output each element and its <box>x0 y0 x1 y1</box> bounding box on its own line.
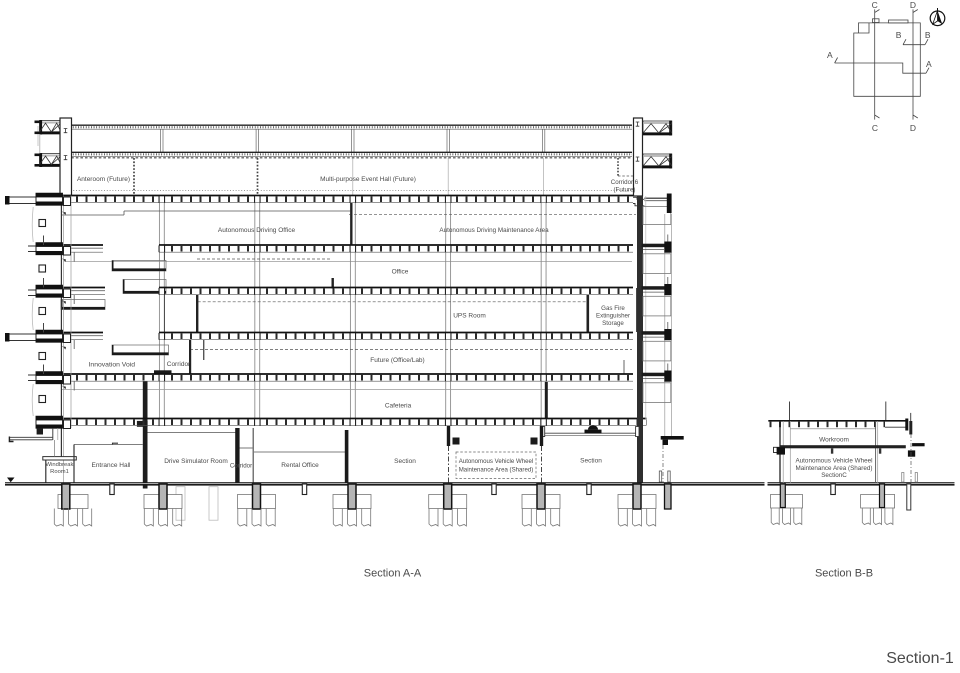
svg-text:Room1: Room1 <box>50 469 69 475</box>
svg-text:Autonomous Vehicle Wheel: Autonomous Vehicle Wheel <box>459 458 534 465</box>
svg-text:UPS Room: UPS Room <box>453 313 486 320</box>
svg-text:(Future): (Future) <box>613 187 635 194</box>
svg-text:Multi-purpose Event Hall (Futu: Multi-purpose Event Hall (Future) <box>320 176 416 183</box>
svg-text:Corridor: Corridor <box>230 463 252 470</box>
svg-text:Autonomous Driving Office: Autonomous Driving Office <box>218 227 296 234</box>
svg-text:Storage: Storage <box>602 320 624 327</box>
svg-text:Windbreak: Windbreak <box>46 462 74 468</box>
svg-text:Rental Office: Rental Office <box>281 462 319 469</box>
svg-text:D: D <box>910 123 916 133</box>
svg-text:Section: Section <box>394 458 416 465</box>
svg-text:Corridor: Corridor <box>167 361 191 368</box>
svg-text:Future (Office/Lab): Future (Office/Lab) <box>370 357 424 364</box>
svg-text:Entrance Hall: Entrance Hall <box>91 462 131 469</box>
svg-text:C: C <box>872 0 878 10</box>
svg-text:Workroom: Workroom <box>819 436 849 443</box>
svg-text:Drive Simulator Room: Drive Simulator Room <box>164 458 228 465</box>
svg-text:B: B <box>925 30 931 40</box>
svg-text:C: C <box>872 123 878 133</box>
svg-text:Autonomous Driving Maintenance: Autonomous Driving Maintenance Area <box>439 227 549 234</box>
svg-text:Section A-A: Section A-A <box>364 568 422 580</box>
svg-text:D: D <box>910 0 916 10</box>
svg-text:Section B-B: Section B-B <box>815 568 873 580</box>
svg-text:Section-1: Section-1 <box>886 650 954 667</box>
svg-text:Autonomous Vehicle Wheel: Autonomous Vehicle Wheel <box>795 458 872 465</box>
svg-text:Extinguisher: Extinguisher <box>596 313 630 320</box>
svg-text:Office: Office <box>392 269 409 276</box>
svg-text:Corridor 6: Corridor 6 <box>611 179 639 186</box>
svg-text:Gas Fire: Gas Fire <box>601 305 625 312</box>
svg-text:Maintenance Area (Shared): Maintenance Area (Shared) <box>459 467 534 474</box>
svg-text:A: A <box>827 50 833 60</box>
svg-text:SectionC: SectionC <box>821 472 847 479</box>
svg-text:Anteroom (Future): Anteroom (Future) <box>77 176 130 183</box>
svg-text:Cafeteria: Cafeteria <box>385 403 412 410</box>
svg-text:A: A <box>926 59 932 69</box>
svg-text:Maintenance Area (Shared): Maintenance Area (Shared) <box>795 465 872 472</box>
svg-text:Innovation Void: Innovation Void <box>89 362 136 369</box>
svg-text:Section: Section <box>580 458 602 465</box>
svg-text:B: B <box>896 30 902 40</box>
